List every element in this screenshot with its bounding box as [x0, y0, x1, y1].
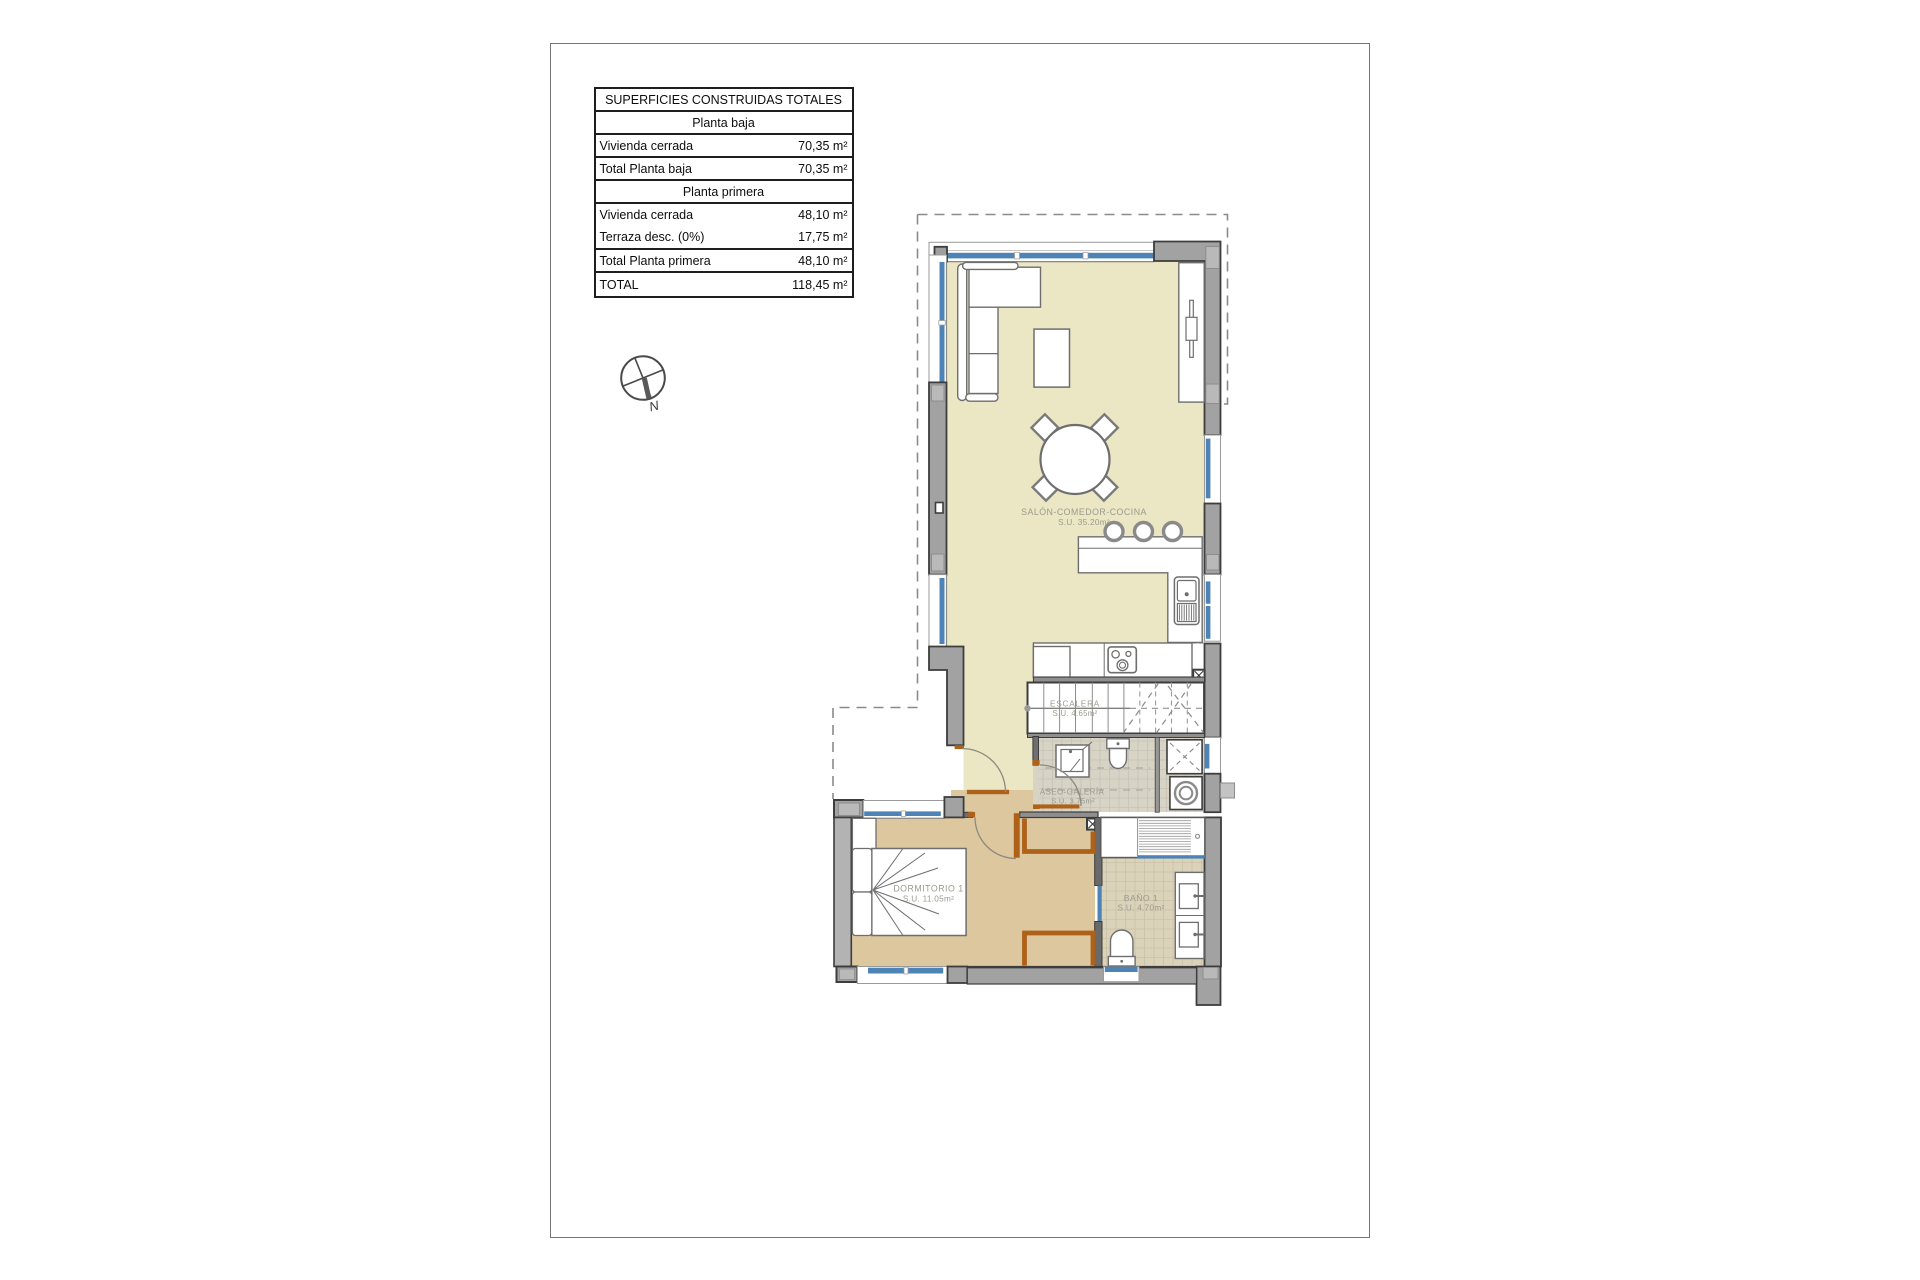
svg-text:S.U. 35.20m²: S.U. 35.20m²: [1058, 518, 1110, 527]
svg-text:S.U. 4.70m²: S.U. 4.70m²: [1118, 904, 1165, 913]
svg-text:ASEO-GALERÍA: ASEO-GALERÍA: [1040, 788, 1105, 797]
svg-text:BAÑO 1: BAÑO 1: [1124, 893, 1159, 903]
svg-text:S.U. 3.75m²: S.U. 3.75m²: [1051, 797, 1095, 806]
svg-text:S.U. 11.05m²: S.U. 11.05m²: [903, 895, 954, 904]
svg-text:ESCALERA: ESCALERA: [1050, 700, 1100, 709]
svg-text:SALÓN-COMEDOR-COCINA: SALÓN-COMEDOR-COCINA: [1021, 507, 1147, 517]
svg-text:DORMITORIO 1: DORMITORIO 1: [893, 884, 963, 894]
svg-text:S.U. 4.65m²: S.U. 4.65m²: [1053, 709, 1098, 718]
svg-text:N: N: [648, 397, 661, 414]
